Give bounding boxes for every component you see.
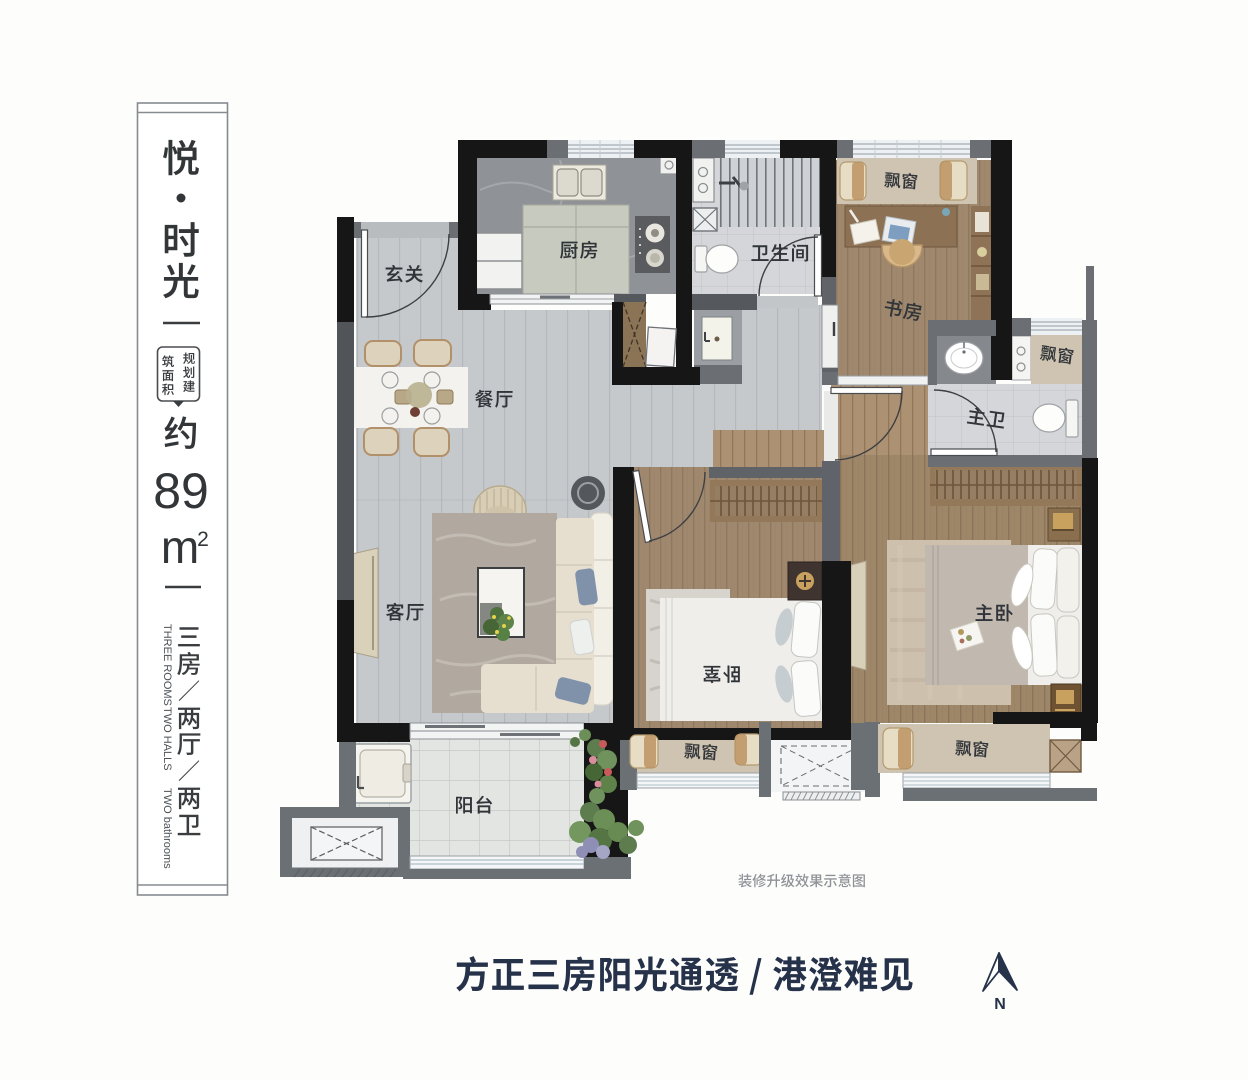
svg-text:N: N [994,996,1006,1013]
svg-text:THREE ROOMS: THREE ROOMS [161,624,173,706]
svg-text:m: m [161,521,199,573]
svg-text:2: 2 [197,528,209,551]
svg-text:TWO bathrooms: TWO bathrooms [161,788,173,869]
svg-text:89: 89 [153,463,209,519]
svg-text:TWO HALLS: TWO HALLS [161,707,173,771]
